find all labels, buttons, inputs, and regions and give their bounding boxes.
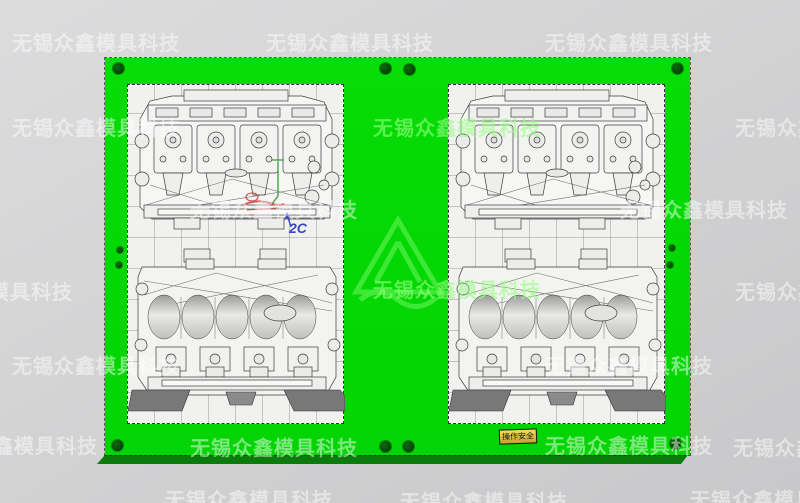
watermark-text: 无锡众鑫模具科技 (545, 27, 713, 56)
engine-top-view (456, 90, 660, 262)
watermark-text: 无锡众鑫模具科技 (733, 432, 800, 461)
engine-block-wireframe-left (128, 85, 345, 425)
engine-top-view (135, 90, 339, 262)
watermark-text: 无锡众鑫模具科技 (400, 486, 568, 503)
cavity-insert-right (448, 84, 665, 424)
engine-bottom-view (128, 259, 345, 411)
watermark-text: 无锡众鑫模具科技 (266, 27, 434, 56)
watermark-text: 无锡众鑫模具科技 (735, 112, 800, 141)
cad-viewport[interactable]: 无锡众鑫模具科技无锡众鑫模具科技无锡众鑫模具科技无锡众鑫模具科技无锡众鑫模具科技… (0, 0, 800, 503)
watermark-text: 无锡众鑫模具科技 (12, 27, 180, 56)
watermark-text: 无锡众鑫模具科技 (165, 484, 333, 503)
watermark-text: 无锡众鑫模具科技 (0, 430, 98, 459)
watermark-text: 无锡众鑫模具科技 (0, 276, 73, 305)
engine-bottom-view (449, 259, 666, 411)
watermark-text: 无锡众鑫模具科技 (690, 484, 800, 503)
yellow-safety-tag: 操作安全 (499, 428, 538, 444)
mold-plate: 2C (105, 58, 690, 455)
engine-block-wireframe-right (449, 85, 666, 425)
mold-plate-side-face (97, 455, 688, 464)
watermark-text: 无锡众鑫模具科技 (735, 276, 800, 305)
cavity-insert-left (127, 84, 344, 424)
